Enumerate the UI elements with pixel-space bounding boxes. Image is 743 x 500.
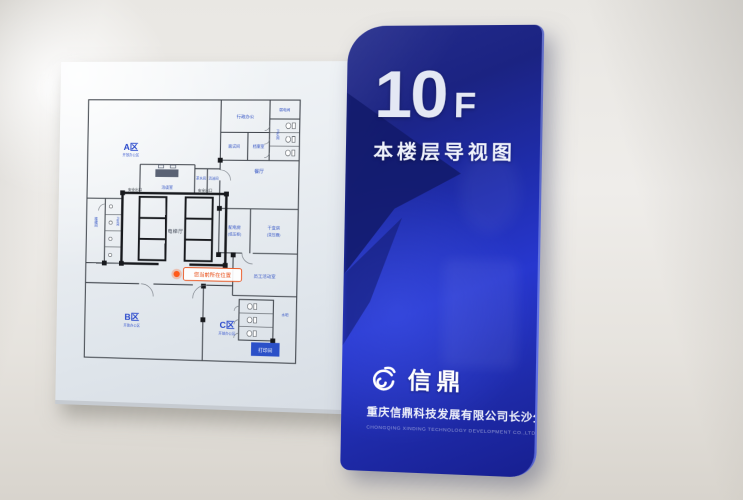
room-label-power-sub: (低压柜): [228, 231, 241, 236]
room-label-admin-office: 行政办公: [237, 113, 255, 120]
zone-c-sublabel: 开放办公区: [218, 331, 236, 337]
zone-b-sublabel: 开放办公区: [123, 322, 140, 328]
floor-suffix: F: [453, 86, 476, 127]
wayfinding-sign: A区 开放办公区 B区 开放办公区 C区 开放办公区 洽谈室 茶水间 清洁间 行…: [54, 14, 571, 492]
room-label-waterbar: 水吧: [282, 312, 290, 317]
elevator-hall-label: 电梯厅: [168, 228, 184, 235]
floor-indicator: 10 F: [374, 61, 522, 128]
floor-plan-board: A区 开放办公区 B区 开放办公区 C区 开放办公区 洽谈室 茶水间 清洁间 行…: [55, 61, 369, 415]
room-label-cleaning: 清洁间: [209, 175, 219, 180]
brand-name: 信鼎: [407, 362, 466, 397]
company-name-cn: 重庆信鼎科技发展有限公司长沙分公司: [367, 404, 545, 427]
room-label-transformer-sub: (变压器): [267, 232, 281, 237]
floor-number: 10: [374, 61, 447, 128]
zone-b-label: B区: [124, 312, 139, 323]
room-label-elv-room: 弱电间: [279, 107, 291, 112]
room-label-pantry: 茶水间: [196, 175, 206, 180]
room-label-interview: 面试间: [228, 144, 240, 149]
zone-a-label: A区: [124, 142, 139, 152]
room-label-transformer: 干变房: [267, 224, 280, 230]
exit-label-left: 安全出口: [128, 187, 143, 192]
zone-a-sublabel: 开放办公区: [123, 152, 140, 157]
photo-scene: A区 开放办公区 B区 开放办公区 C区 开放办公区 洽谈室 茶水间 清洁间 行…: [0, 0, 743, 500]
exit-label-right: 安全出口: [198, 188, 213, 193]
room-label-archive: 档案室: [253, 144, 265, 149]
room-label-stairs: 楼梯间: [93, 216, 98, 228]
panel-content: 10 F 本楼层导视图 信鼎 重庆信鼎科技发展有限公司长沙分公司 CH: [340, 25, 542, 478]
room-label-activity: 员工活动室: [254, 272, 276, 280]
walls: [84, 100, 300, 364]
panel-subtitle: 本楼层导视图: [373, 138, 520, 166]
brand-row: 信鼎: [367, 361, 466, 397]
room-label-wc-top: 卫生间: [275, 130, 280, 141]
zone-c-label: C区: [219, 320, 235, 331]
room-label-meeting: 洽谈室: [161, 184, 173, 189]
room-label-power: 配电房: [228, 224, 241, 230]
company-name-en: CHONGQING XINDING TECHNOLOGY DEVELOPMENT…: [366, 424, 544, 438]
floor-plan: A区 开放办公区 B区 开放办公区 C区 开放办公区 洽谈室 茶水间 清洁间 行…: [82, 88, 303, 376]
blue-info-panel: 10 F 本楼层导视图 信鼎 重庆信鼎科技发展有限公司长沙分公司 CH: [340, 25, 544, 478]
floor-plan-drawing: A区 开放办公区 B区 开放办公区 C区 开放办公区 洽谈室 茶水间 清洁间 行…: [82, 88, 303, 376]
you-are-here-marker: 您当前所在位置: [171, 267, 241, 281]
xinding-logo-icon: [367, 362, 399, 394]
meeting-table-icon: [155, 165, 178, 177]
room-label-wc-left: 卫生间: [115, 216, 119, 226]
room-label-canteen: 餐厅: [254, 168, 264, 175]
